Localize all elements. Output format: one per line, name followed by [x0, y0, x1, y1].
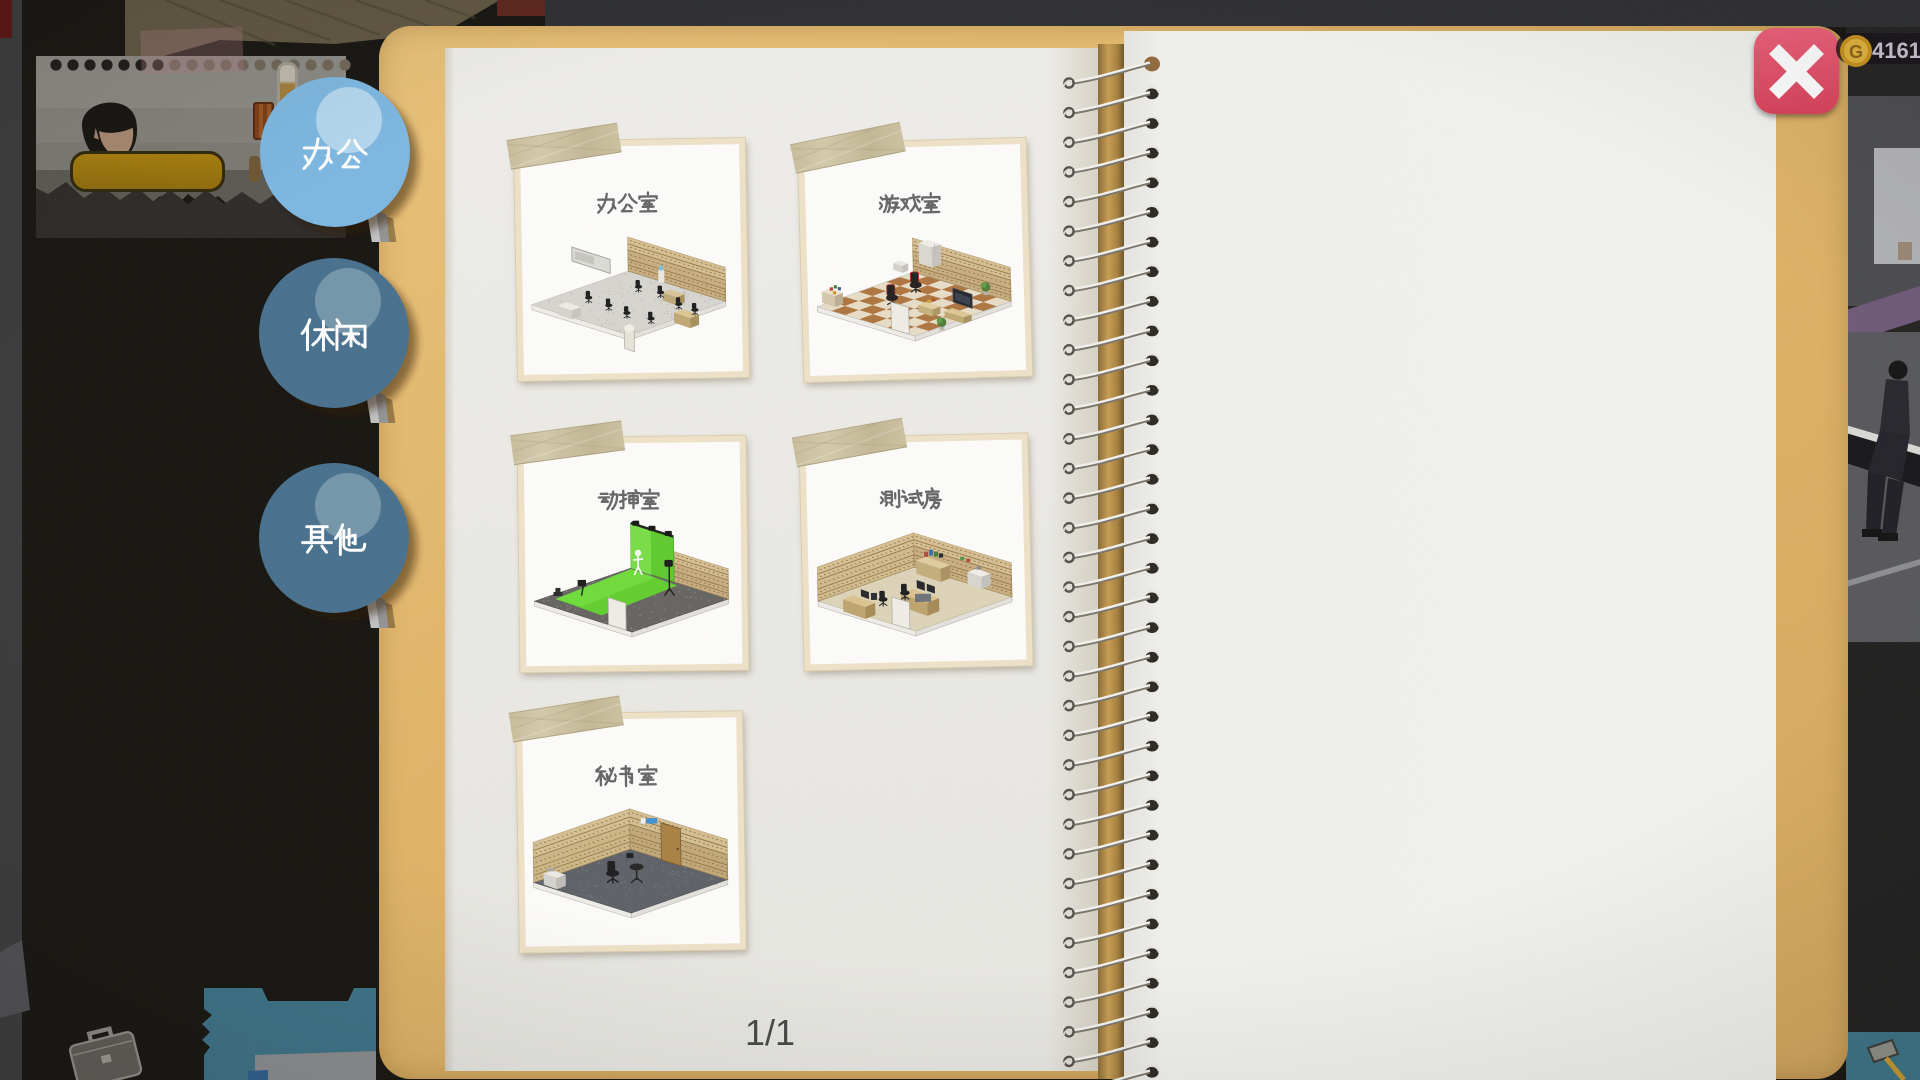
- svg-text:G: G: [1849, 42, 1863, 62]
